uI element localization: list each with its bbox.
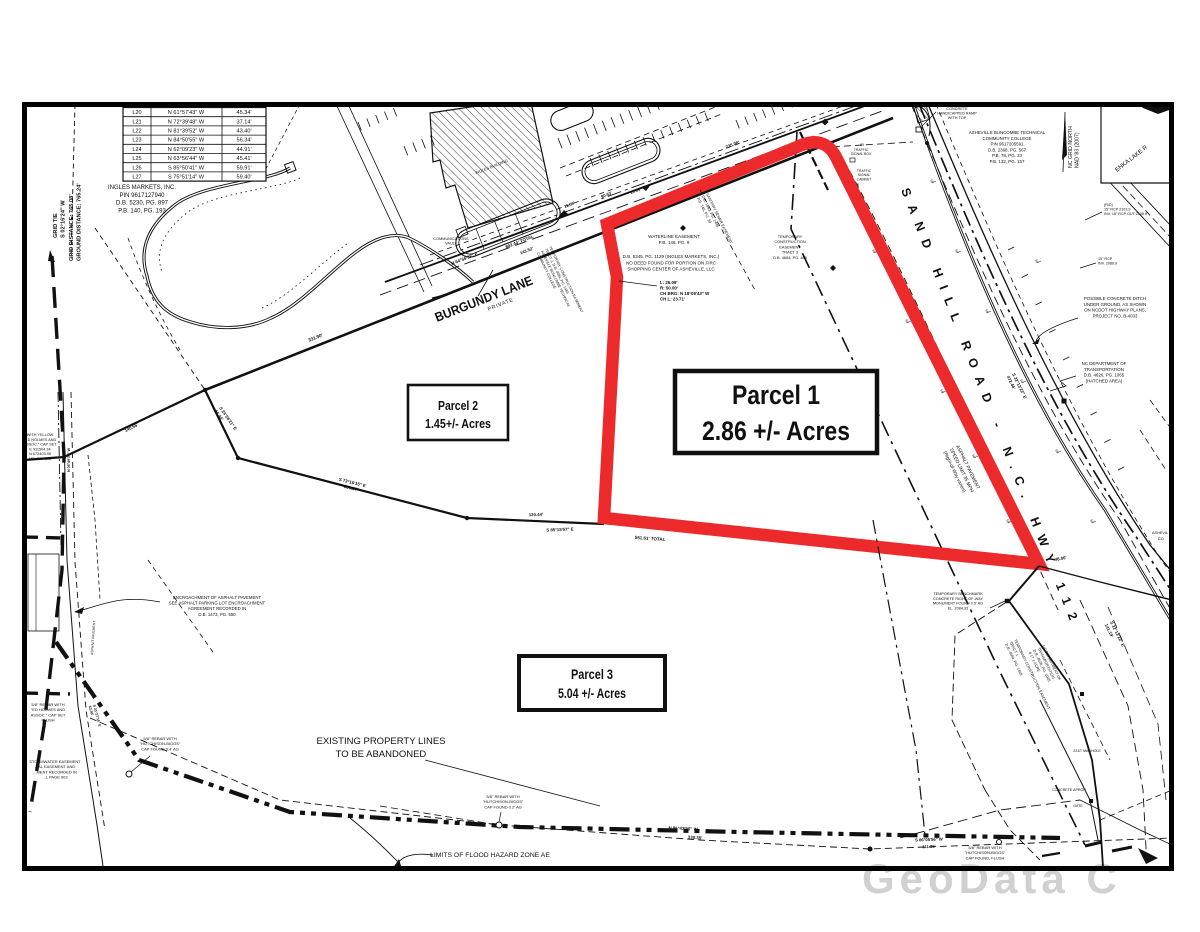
svg-text:S 02°16'24" W: S 02°16'24" W [61,200,67,238]
svg-text:GRID TIE: GRID TIE [53,213,59,238]
svg-text:L25: L25 [132,156,141,162]
svg-text:120.44': 120.44' [529,512,543,517]
svg-text:N 05°49'37" W: N 05°49'37" W [67,447,71,472]
svg-text:L22: L22 [132,129,141,135]
svg-text:ASHEVILLE BUNCOMBE TECHNICAL: ASHEVILLE BUNCOMBE TECHNICAL [969,130,1046,135]
svg-text:85: 85 [860,143,864,147]
svg-text:D.B. 5230, PG. 897: D.B. 5230, PG. 897 [116,201,169,207]
svg-text:L26: L26 [132,165,141,171]
svg-text:AGREEMENT RECORDED IN: AGREEMENT RECORDED IN [188,606,246,611]
svg-text:CAP FOUND, FLUSH: CAP FOUND, FLUSH [966,855,1005,860]
svg-text:TO BE ABANDONED: TO BE ABANDONED [336,749,427,760]
svg-text:UNDER GROUND, AS SHOWN: UNDER GROUND, AS SHOWN [1084,302,1146,307]
svg-text:15" RCP 2103.9: 15" RCP 2103.9 [1104,208,1130,212]
svg-text:Parcel 1: Parcel 1 [732,380,820,410]
svg-text:EXISTING PROPERTY LINES: EXISTING PROPERTY LINES [317,736,446,747]
svg-text:56.34': 56.34' [236,138,251,144]
svg-text:PROJECT NO. B-4033: PROJECT NO. B-4033 [1093,313,1138,318]
svg-text:...L PAGE 903: ...L PAGE 903 [42,775,68,780]
svg-text:MONUMENT FOUND 0.5' AG: MONUMENT FOUND 0.5' AG [933,602,983,606]
svg-text:ASHEVIL: ASHEVIL [1152,531,1168,535]
svg-text:S 85°50'41" W: S 85°50'41" W [168,165,205,171]
svg-text:5.04 +/- Acres: 5.04 +/- Acres [558,685,626,701]
svg-text:L27: L27 [132,175,141,181]
svg-text:L20: L20 [132,110,141,116]
svg-text:INV. 2086.9: INV. 2086.9 [1098,262,1117,266]
svg-text:TRANSPORTATION: TRANSPORTATION [1084,367,1124,372]
svg-text:LIMITS OF FLOOD HAZARD ZONE AE: LIMITS OF FLOOD HAZARD ZONE AE [430,852,550,859]
svg-text:CAP FOUND 0.4' AG: CAP FOUND 0.4' AG [141,746,179,751]
svg-text:D.B. 4626, PG. 1065: D.B. 4626, PG. 1065 [1084,373,1125,378]
svg-text:NC GRID NORTH: NC GRID NORTH [1068,126,1074,168]
svg-text:WITH YELLOW: WITH YELLOW [27,433,54,437]
svg-text:GATE: GATE [1073,804,1083,808]
svg-text:CABINET: CABINET [857,177,872,181]
svg-text:MD. PG. 193: MD. PG. 193 [29,457,51,461]
svg-text:TEMPORARY BENCHMARK: TEMPORARY BENCHMARK [933,592,983,596]
svg-text:NAD '83 (2007): NAD '83 (2007) [1075,132,1081,168]
svg-text:N 61°57'43" W: N 61°57'43" W [168,110,205,116]
svg-text:PIN 9617205591: PIN 9617205591 [991,142,1025,147]
svg-text:CONCRETE APRON: CONCRETE APRON [1052,788,1086,792]
svg-text:HANDICAPPED RAMP: HANDICAPPED RAMP [937,112,977,116]
svg-text:2.86 +/- Acres: 2.86 +/- Acres [702,416,850,446]
svg-text:PIN 9617127940: PIN 9617127940 [119,193,165,199]
svg-text:P.B. 132, PG. 157: P.B. 132, PG. 157 [990,159,1025,164]
svg-text:GROUND DISTANCE: 765.24': GROUND DISTANCE: 765.24' [77,183,83,261]
svg-text:INGLES MARKETS, INC.: INGLES MARKETS, INC. [108,185,176,191]
svg-text:INV. 18" RCP OUT 2108.9: INV. 18" RCP OUT 2108.9 [1104,212,1147,216]
svg-text:N 63°56'44" W: N 63°56'44" W [168,156,205,162]
svg-text:CO: CO [1158,537,1164,541]
svg-text:1.45+/- Acres: 1.45+/- Acres [425,416,491,431]
svg-text:P.B. 140, PG. 193: P.B. 140, PG. 193 [118,208,166,214]
svg-text:"ED HOLMES AND: "ED HOLMES AND [24,438,57,442]
svg-text:EL. 2084.33: EL. 2084.33 [948,606,968,610]
svg-text:CH BRG: N 18°09'43" W: CH BRG: N 18°09'43" W [660,291,710,296]
svg-text:N 81°39'52" W: N 81°39'52" W [168,129,205,135]
svg-text:Parcel 2: Parcel 2 [438,398,478,413]
svg-text:L21: L21 [132,119,141,125]
svg-text:L24: L24 [132,147,141,153]
svg-text:P.B. 146, PG. 9: P.B. 146, PG. 9 [659,240,690,245]
svg-text:15" RCP: 15" RCP [1098,257,1113,261]
svg-text:330.35': 330.35' [688,835,703,841]
svg-text:(R/D): (R/D) [1104,203,1113,207]
svg-text:GRID DISTANCE: 765.08': GRID DISTANCE: 765.08' [69,194,75,261]
svg-text:GeoData C: GeoData C [862,855,1122,902]
svg-text:S 85°15'57" E: S 85°15'57" E [546,527,574,533]
svg-text:N 672403.98: N 672403.98 [29,452,51,456]
svg-text:43.40': 43.40' [236,129,251,135]
svg-text:L: 25.09': L: 25.09' [660,280,677,285]
svg-text:ASSOC." CAP SET: ASSOC." CAP SET [24,443,58,447]
svg-text:P.B. 78, PG. 23: P.B. 78, PG. 23 [992,153,1022,158]
svg-text:D.B. 5345, PG. 1129 (INGLES MA: D.B. 5345, PG. 1129 (INGLES MARKETS, INC… [623,254,720,259]
svg-text:CH L: 23.71': CH L: 23.71' [660,297,685,302]
svg-text:SHOPPING CENTER OF ASHEVILLE,: SHOPPING CENTER OF ASHEVILLE, LLC [627,267,715,272]
svg-text:CONCRETE RIGHT-OF-WAY: CONCRETE RIGHT-OF-WAY [933,597,983,601]
svg-text:D.B. 2368, PG. 567: D.B. 2368, PG. 567 [988,147,1027,152]
svg-text:WITH TOP: WITH TOP [948,116,967,120]
svg-text:N 72°39'48" W: N 72°39'48" W [168,119,205,125]
svg-text:D.B. 1473, PG. 550: D.B. 1473, PG. 550 [198,612,236,617]
svg-text:L23: L23 [132,138,141,144]
svg-text:D.B. 4684, PG. 485: D.B. 4684, PG. 485 [773,255,807,260]
svg-text:CONCRETE: CONCRETE [946,107,968,111]
svg-text:N 62°09'23" W: N 62°09'23" W [168,147,205,153]
svg-text:45.34': 45.34' [236,110,251,116]
svg-text:37.14': 37.14' [236,119,251,125]
svg-text:CAP FOUND 0.2' AG: CAP FOUND 0.2' AG [484,804,522,809]
svg-text:59.40': 59.40' [236,175,251,181]
svg-text:NO DEED FOUND FOR PORTION ON F: NO DEED FOUND FOR PORTION ON FIRC [626,260,717,265]
svg-text:(HATCHED AREA): (HATCHED AREA) [1086,378,1123,383]
svg-text:SIGNAL BOX: SIGNAL BOX [851,152,872,156]
svg-text:44.91': 44.91' [236,147,251,153]
svg-text:E 911504.34: E 911504.34 [29,447,50,451]
svg-text:AT&T MANHOLE: AT&T MANHOLE [1073,749,1101,753]
svg-text:NC DEPARTMENT OF: NC DEPARTMENT OF [1082,361,1127,366]
svg-text:FLUSH: FLUSH [41,718,54,723]
svg-text:COMMUNICATIONS: COMMUNICATIONS [433,237,469,241]
svg-text:S 75°51'14" W: S 75°51'14" W [168,175,205,181]
svg-text:ENCROACHMENT OF ASPHALT PAVEME: ENCROACHMENT OF ASPHALT PAVEMENT [173,595,262,600]
svg-text:S 86°05'56" W: S 86°05'56" W [915,837,943,843]
svg-text:SEE ASPHALT PARKING LOT ENCROA: SEE ASPHALT PARKING LOT ENCROACHMENT [169,601,266,606]
svg-text:111.35': 111.35' [922,844,936,849]
svg-text:VAULT: VAULT [445,242,457,246]
svg-text:59.91': 59.91' [236,165,251,171]
svg-text:45.41': 45.41' [236,156,251,162]
svg-text:Parcel 3: Parcel 3 [571,666,613,682]
svg-text:R: 50.00': R: 50.00' [660,286,678,291]
svg-text:N 84°50'55" W: N 84°50'55" W [168,138,205,144]
svg-text:POSSIBLE CONCRETE DITCH: POSSIBLE CONCRETE DITCH [1084,296,1146,301]
svg-text:COMMUNITY COLLEGE: COMMUNITY COLLEGE [983,136,1032,141]
svg-text:ON NCDOT HIGHWAY PLANS,: ON NCDOT HIGHWAY PLANS, [1084,308,1146,313]
svg-text:WATERLINE EASEMENT: WATERLINE EASEMENT [648,234,700,239]
